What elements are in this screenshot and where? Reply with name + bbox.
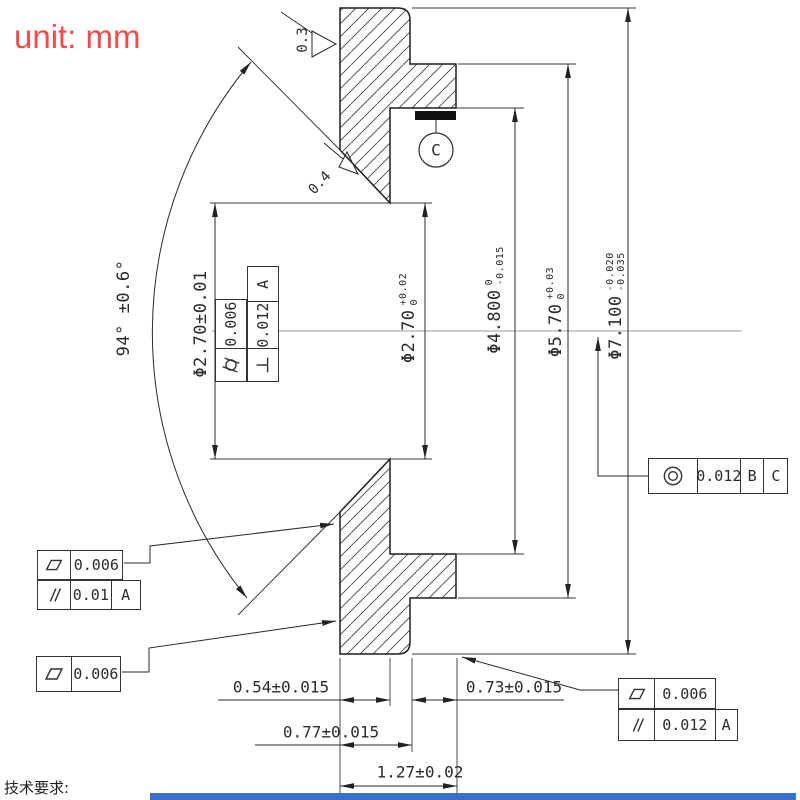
concentricity-icon [648, 458, 698, 494]
fcf-perpendicularity-datum: A [247, 266, 279, 302]
dim-d5-70-tolerance: +0.030 [545, 267, 567, 300]
surface-finish-top-value: 0.3 [295, 27, 311, 52]
dim-len-073: 0.73±0.015 [466, 678, 562, 697]
dim-d4-800-tolerance: 0-0.015 [484, 246, 506, 285]
flatness-icon [36, 656, 72, 692]
dim-len-054: 0.54±0.015 [233, 678, 329, 697]
flatness-icon [37, 550, 71, 580]
dim-len-077: 0.77±0.015 [283, 723, 379, 742]
fcf-perpendicularity-value: 0.012 [247, 301, 279, 349]
fcf-perpendicularity: 0.012 A [247, 266, 279, 382]
dim-d2-70-tol: Φ2.70±0.01 [191, 270, 211, 377]
extension-lines [210, 8, 636, 794]
fcf-concentricity-value: 0.012 [697, 458, 741, 494]
fcf-left-flatness: 0.006 [37, 550, 123, 580]
flatness-icon [618, 678, 655, 709]
cylindricity-icon [215, 348, 247, 382]
fcf-left-stack: 0.006 0.01 A [37, 550, 141, 610]
bottom-blue-bar [150, 793, 796, 800]
fcf-cylindricity-value: 0.006 [215, 299, 247, 349]
dim-d5-70-main: Φ5.70 [546, 303, 566, 357]
part-section-lower [340, 459, 456, 654]
dim-d2-70-bore-tolerance: +0.020 [398, 273, 420, 306]
dim-d5-70: Φ5.70 +0.030 [545, 267, 567, 357]
fcf-left-parallelism-value: 0.01 [70, 580, 112, 610]
angle-dim-label: 94° ±0.6° [114, 260, 134, 357]
fcf-bottom-right-parallelism-value: 0.012 [654, 709, 716, 741]
parallelism-icon [618, 709, 655, 741]
datum-target-c-letter: C [431, 141, 441, 160]
fcf-bottom-right-flatness-value: 0.006 [654, 678, 716, 709]
technical-requirements-label: 技术要求: [4, 777, 69, 798]
engineering-drawing-page: unit: mm 技术要求: Φ2.70±0.01 Φ2.70 +0.020 Φ… [0, 0, 800, 800]
dim-d7-100: Φ7.100 -0.020-0.035 [605, 252, 627, 360]
dim-d4-800: Φ4.800 0-0.015 [484, 246, 506, 354]
fcf-bottom-left-flatness: 0.006 [36, 656, 121, 692]
dim-d2-70-bore: Φ2.70 +0.020 [398, 273, 420, 363]
fcf-cylindricity: 0.006 [215, 299, 247, 382]
fcf-bottom-right-flatness: 0.006 [618, 678, 716, 709]
unit-label: unit: mm [14, 18, 141, 56]
fcf-bottom-right-stack: 0.006 0.012 A [618, 678, 738, 741]
fcf-cylindricity-perpendicularity: 0.006 0.012 A [215, 264, 279, 382]
fcf-bottom-left-flatness-value: 0.006 [71, 656, 121, 692]
dim-d2-70-bore-main: Φ2.70 [399, 309, 419, 363]
dim-len-127: 1.27±0.02 [377, 763, 464, 782]
fcf-concentricity-datum-b: B [740, 458, 765, 494]
fcf-left-parallelism: 0.01 A [37, 580, 141, 610]
fcf-left-flatness-value: 0.006 [70, 550, 123, 580]
fcf-concentricity: 0.012 B C [648, 458, 788, 494]
dim-d7-100-tolerance: -0.020-0.035 [605, 252, 627, 291]
dim-d7-100-main: Φ7.100 [606, 295, 626, 359]
parallelism-icon [37, 580, 71, 610]
fcf-bottom-right-parallelism-datum: A [715, 709, 738, 741]
perpendicularity-icon [247, 348, 279, 382]
fcf-bottom-right-parallelism: 0.012 A [618, 709, 738, 741]
fcf-left-parallelism-datum: A [111, 580, 141, 610]
dim-d4-800-main: Φ4.800 [485, 289, 505, 353]
fcf-concentricity-datum-c: C [763, 458, 788, 494]
